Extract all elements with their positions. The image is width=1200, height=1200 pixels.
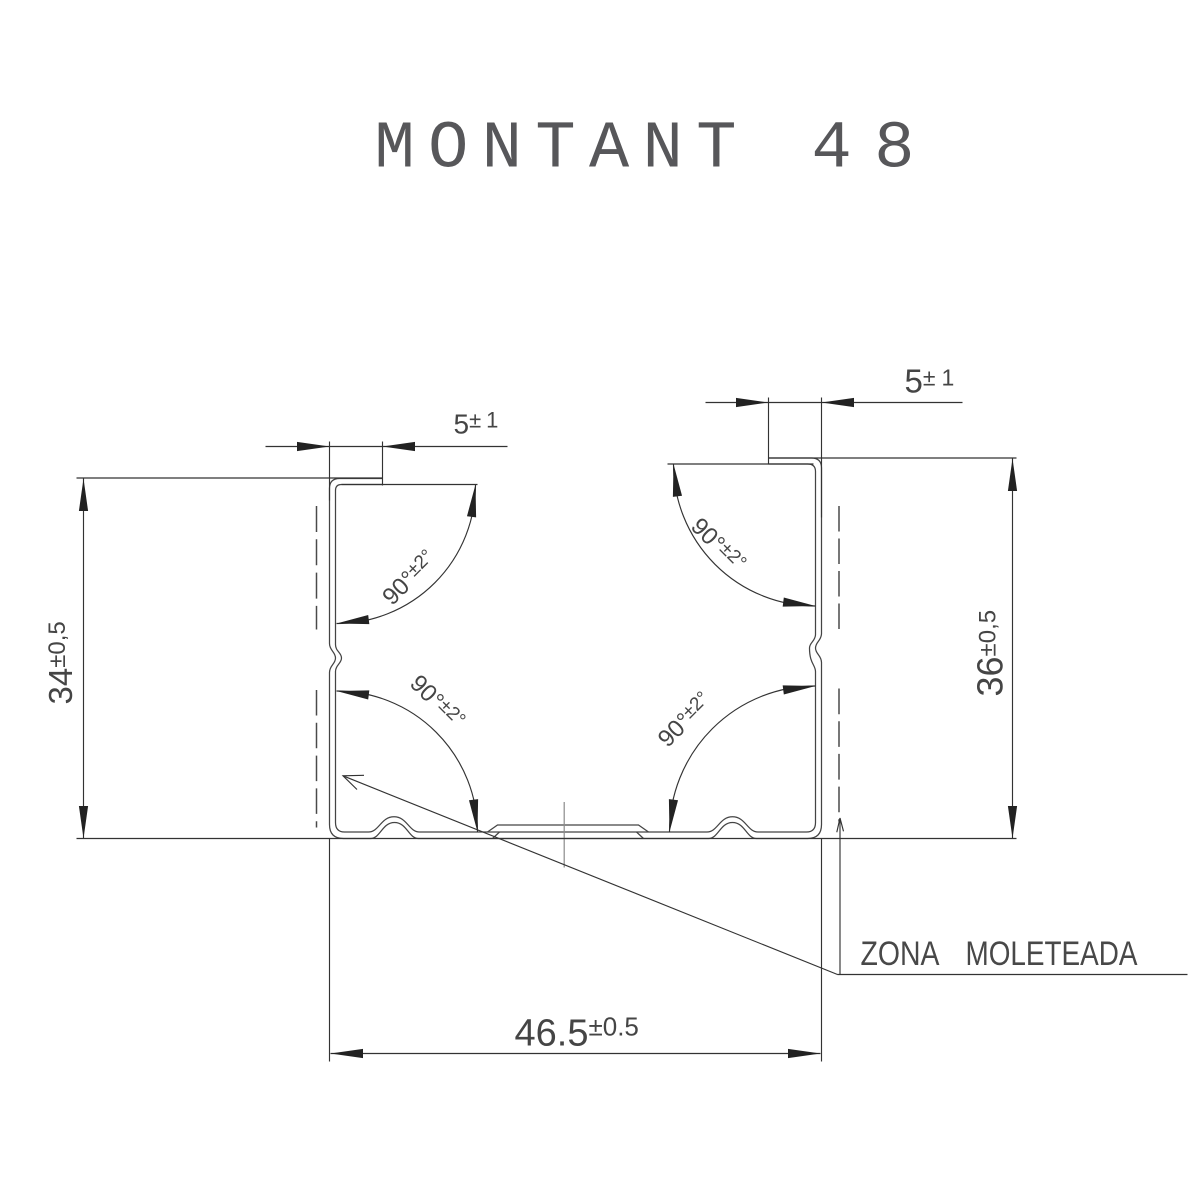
svg-text:MONTANT: MONTANT [375, 112, 737, 188]
svg-text:ZONA: ZONA [861, 935, 940, 973]
svg-text:MOLETEADA: MOLETEADA [966, 935, 1138, 973]
